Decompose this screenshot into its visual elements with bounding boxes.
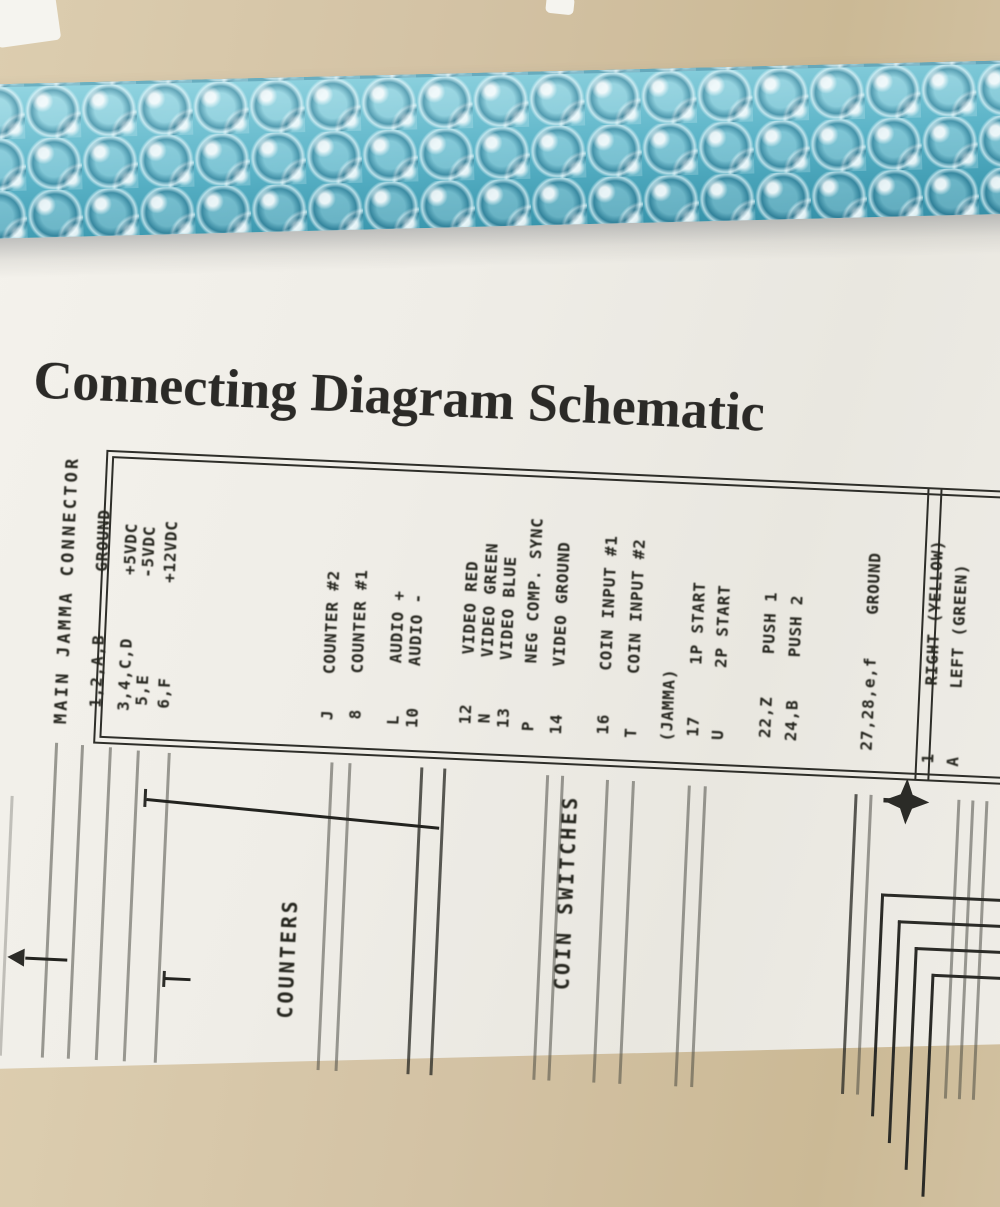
connector-pin: L xyxy=(384,714,402,725)
main-connector-header: MAIN JAMMA CONNECTOR xyxy=(52,455,82,724)
connector-pin: U xyxy=(709,729,727,740)
connector-label: GROUND xyxy=(864,552,885,615)
connector-pin: 12 xyxy=(456,703,475,725)
connector-label: PUSH 2 xyxy=(786,594,807,657)
corner-wire xyxy=(921,974,1000,1207)
page-title: Connecting Diagram Schematic xyxy=(32,348,766,443)
connector-pin: T xyxy=(622,727,640,738)
connector-note: (JAMMA) xyxy=(658,668,679,742)
connector-pin: 1 xyxy=(919,753,937,764)
connector-pin: 17 xyxy=(684,715,703,737)
connector-pin: N xyxy=(475,712,493,723)
counters-wire-label: COUNTERS xyxy=(276,898,299,1019)
paper-speck xyxy=(545,0,575,15)
connector-label: GROUND xyxy=(93,509,114,572)
bus-line xyxy=(146,798,439,830)
connector-pin: 1,2,A,B xyxy=(87,634,108,708)
connector-pin: 14 xyxy=(547,713,566,735)
wire xyxy=(841,794,858,1094)
wire xyxy=(856,795,872,1095)
connector-pin: A xyxy=(944,756,962,767)
printed-content: Connecting Diagram Schematic MAIN JAMMA … xyxy=(0,0,1000,1040)
connector-label: -5VDC xyxy=(139,525,159,578)
connector-pin: 5,E xyxy=(133,674,152,706)
connector-label: 1P START xyxy=(687,581,709,665)
connector-pin: P xyxy=(519,720,537,731)
connector-pin: 6,F xyxy=(155,677,174,709)
connector-label: AUDIO - xyxy=(406,593,427,667)
arrow-left-icon xyxy=(7,948,25,967)
connector-pin: J xyxy=(318,709,336,720)
connector-pin: 10 xyxy=(403,707,422,729)
connector-pin: 16 xyxy=(594,713,613,735)
star-junction-icon xyxy=(882,777,930,825)
connector-pin: 8 xyxy=(346,709,364,720)
connector-pin: 24,B xyxy=(782,699,802,742)
connector-pin: 22,Z xyxy=(756,696,776,739)
connector-label: PUSH 1 xyxy=(760,591,781,654)
connector-label: +12VDC xyxy=(160,520,181,583)
bus-terminal xyxy=(143,789,147,807)
photo-of-schematic: { "document": { "title": "Connecting Dia… xyxy=(0,0,1000,1000)
terminal-lead xyxy=(164,977,190,981)
connector-label: 2P START xyxy=(712,584,734,668)
connector-pin: 13 xyxy=(494,707,513,729)
